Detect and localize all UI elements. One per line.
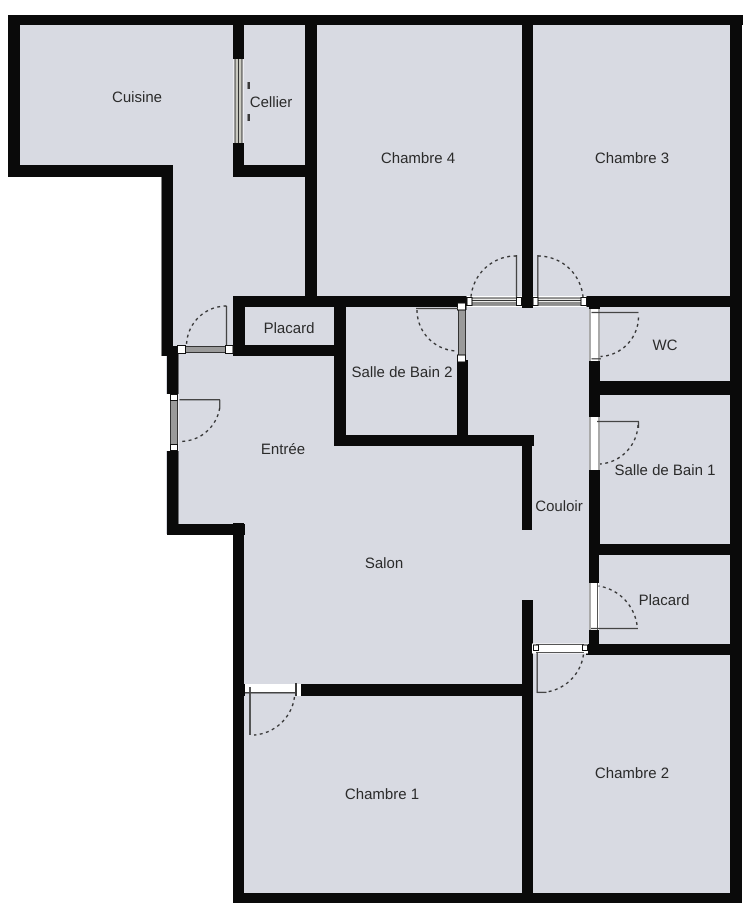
svg-text:Salle de Bain 2: Salle de Bain 2 [352,364,453,381]
svg-text:Salon: Salon [365,555,403,572]
svg-text:Placard: Placard [639,592,690,609]
svg-text:Salle de Bain 1: Salle de Bain 1 [615,462,716,479]
svg-text:WC: WC [653,337,678,354]
svg-text:Cellier: Cellier [250,94,293,111]
svg-text:Chambre 1: Chambre 1 [345,786,419,803]
svg-text:Placard: Placard [264,320,315,337]
svg-text:Couloir: Couloir [535,498,583,515]
svg-text:Entrée: Entrée [261,441,305,458]
svg-text:Chambre 4: Chambre 4 [381,150,455,167]
svg-text:Chambre 3: Chambre 3 [595,150,669,167]
svg-text:Cuisine: Cuisine [112,89,162,106]
svg-text:Chambre 2: Chambre 2 [595,765,669,782]
